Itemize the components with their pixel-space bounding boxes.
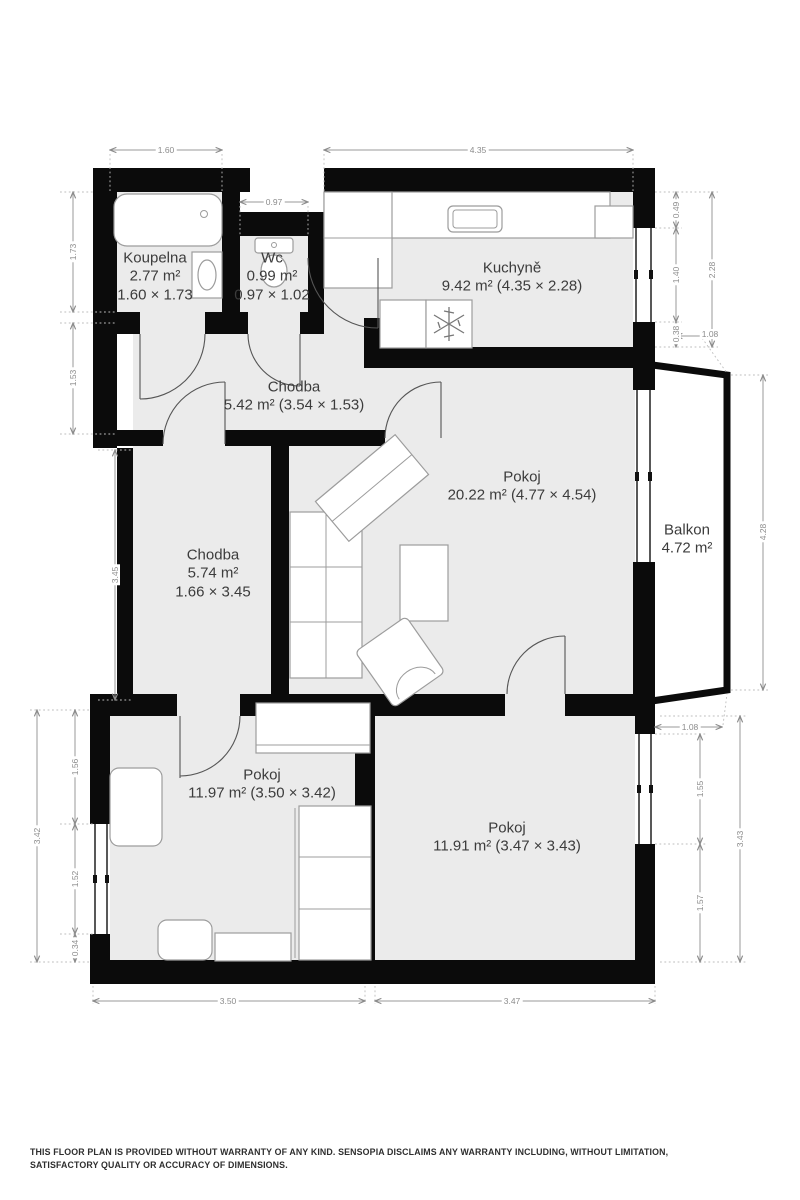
room-name: Chodba [175, 547, 250, 565]
dim-right-pokoj-window: 1.55 [695, 779, 705, 800]
room-name: Koupelna [117, 250, 192, 268]
dim-bottom-pokoj-levy: 3.50 [218, 996, 239, 1006]
room-label-kuchyne: Kuchyně 9.42 m² (4.35 × 2.28) [442, 260, 583, 297]
room-area: 4.72 m² [662, 540, 713, 558]
labels-overlay: Koupelna 2.77 m² 1.60 × 1.73 Wc 0.99 m² … [0, 0, 800, 1200]
room-area: 11.97 m² (3.50 × 3.42) [188, 785, 336, 803]
room-label-wc: Wc 0.99 m² 0.97 × 1.02 [234, 250, 309, 305]
room-area: 5.42 m² (3.54 × 1.53) [224, 397, 365, 415]
room-name: Pokoj [433, 820, 581, 838]
dim-bottom-pokoj-pravy: 3.47 [502, 996, 523, 1006]
room-label-pokoj-obyvaci: Pokoj 20.22 m² (4.77 × 4.54) [448, 469, 597, 506]
dim-left-pokoj-total: 3.42 [32, 826, 42, 847]
dim-balkon-top-offset: 1.08 [700, 329, 721, 339]
disclaimer-text: THIS FLOOR PLAN IS PROVIDED WITHOUT WARR… [30, 1146, 730, 1172]
room-label-koupelna: Koupelna 2.77 m² 1.60 × 1.73 [117, 250, 192, 305]
room-name: Wc [234, 250, 309, 268]
dim-right-kuchyne-window: 1.40 [671, 265, 681, 286]
room-area: 5.74 m² [175, 565, 250, 583]
room-name: Pokoj [188, 767, 336, 785]
dim-balkon-bottom-offset: 1.08 [680, 722, 701, 732]
room-area: 20.22 m² (4.77 × 4.54) [448, 487, 597, 505]
dim-top-kuchyne: 4.35 [468, 145, 489, 155]
dim-right-kuchyne-total: 2.28 [707, 260, 717, 281]
dim-left-pokoj-window: 1.52 [70, 869, 80, 890]
room-area: 2.77 m² [117, 268, 192, 286]
dim-right-kuchyne-upper: 0.49 [671, 200, 681, 221]
room-label-balkon: Balkon 4.72 m² [662, 522, 713, 559]
room-area: 9.42 m² (4.35 × 2.28) [442, 278, 583, 296]
dim-left-pokoj-lower: 0.34 [70, 938, 80, 959]
room-label-chodba-horni: Chodba 5.42 m² (3.54 × 1.53) [224, 379, 365, 416]
room-dims: 1.60 × 1.73 [117, 286, 192, 304]
room-name: Chodba [224, 379, 365, 397]
room-name: Balkon [662, 522, 713, 540]
dim-right-pokoj-total: 3.43 [735, 829, 745, 850]
room-area: 0.99 m² [234, 268, 309, 286]
dim-top-koupelna: 1.60 [156, 145, 177, 155]
room-label-pokoj-pravy: Pokoj 11.91 m² (3.47 × 3.43) [433, 820, 581, 857]
dim-right-pokoj-lower: 1.57 [695, 893, 705, 914]
dim-top-wc: 0.97 [264, 197, 285, 207]
room-area: 11.91 m² (3.47 × 3.43) [433, 838, 581, 856]
floor-plan-page: Koupelna 2.77 m² 1.60 × 1.73 Wc 0.99 m² … [0, 0, 800, 1200]
room-label-pokoj-levy: Pokoj 11.97 m² (3.50 × 3.42) [188, 767, 336, 804]
room-label-chodba-dolni: Chodba 5.74 m² 1.66 × 3.45 [175, 547, 250, 602]
room-dims: 0.97 × 1.02 [234, 286, 309, 304]
dim-left-chodba-dolni: 3.45 [110, 565, 120, 586]
room-name: Kuchyně [442, 260, 583, 278]
dim-left-pokoj-upper: 1.56 [70, 757, 80, 778]
dim-balkon-length: 4.28 [758, 522, 768, 543]
dim-left-chodba-horni: 1.53 [68, 368, 78, 389]
room-dims: 1.66 × 3.45 [175, 583, 250, 601]
dim-left-koupelna: 1.73 [68, 242, 78, 263]
room-name: Pokoj [448, 469, 597, 487]
dim-right-kuchyne-lower: 0.38 [671, 324, 681, 345]
